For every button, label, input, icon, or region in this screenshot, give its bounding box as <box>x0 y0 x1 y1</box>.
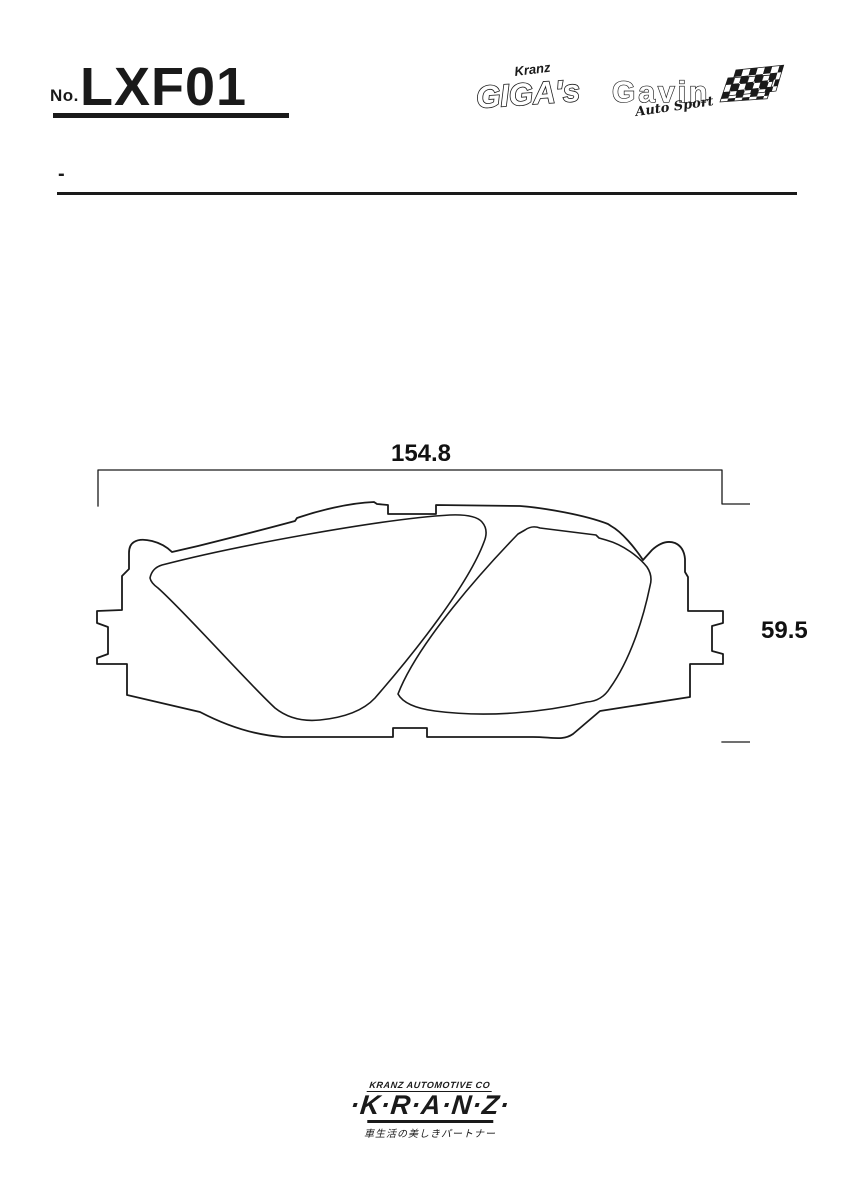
catalog-page: No. LXF01 Kranz GIGA's Gavin Auto Sport … <box>0 0 848 1200</box>
gigas-logo: Kranz GIGA's <box>473 60 613 122</box>
width-dimension-line <box>98 470 750 506</box>
part-number: LXF01 <box>80 56 247 118</box>
part-number-prefix: No. <box>50 86 79 106</box>
gavin-auto-sport-logo: Gavin Auto Sport <box>608 60 793 122</box>
kranz-logo: KRANZ AUTOMOTIVE CO ·K·R·A·N·Z· 車生活の美しきパ… <box>350 1080 509 1140</box>
height-dimension-line <box>722 504 750 742</box>
dash-mark: - <box>58 163 65 186</box>
height-dimension-label: 59.5 <box>761 617 808 645</box>
kranz-underline-bar <box>367 1120 493 1123</box>
checkered-flag-icon <box>720 65 784 102</box>
gigas-main-text: GIGA's <box>475 73 581 115</box>
title-underline <box>53 113 289 118</box>
brake-pad-drawing <box>90 440 750 770</box>
pad-friction-right-outline <box>398 527 651 714</box>
kranz-tagline-japanese: 車生活の美しきパートナー <box>364 1125 496 1140</box>
header-rule <box>57 192 797 195</box>
kranz-brand-wordmark: ·K·R·A·N·Z· <box>349 1092 511 1119</box>
width-dimension-label: 154.8 <box>378 440 464 468</box>
